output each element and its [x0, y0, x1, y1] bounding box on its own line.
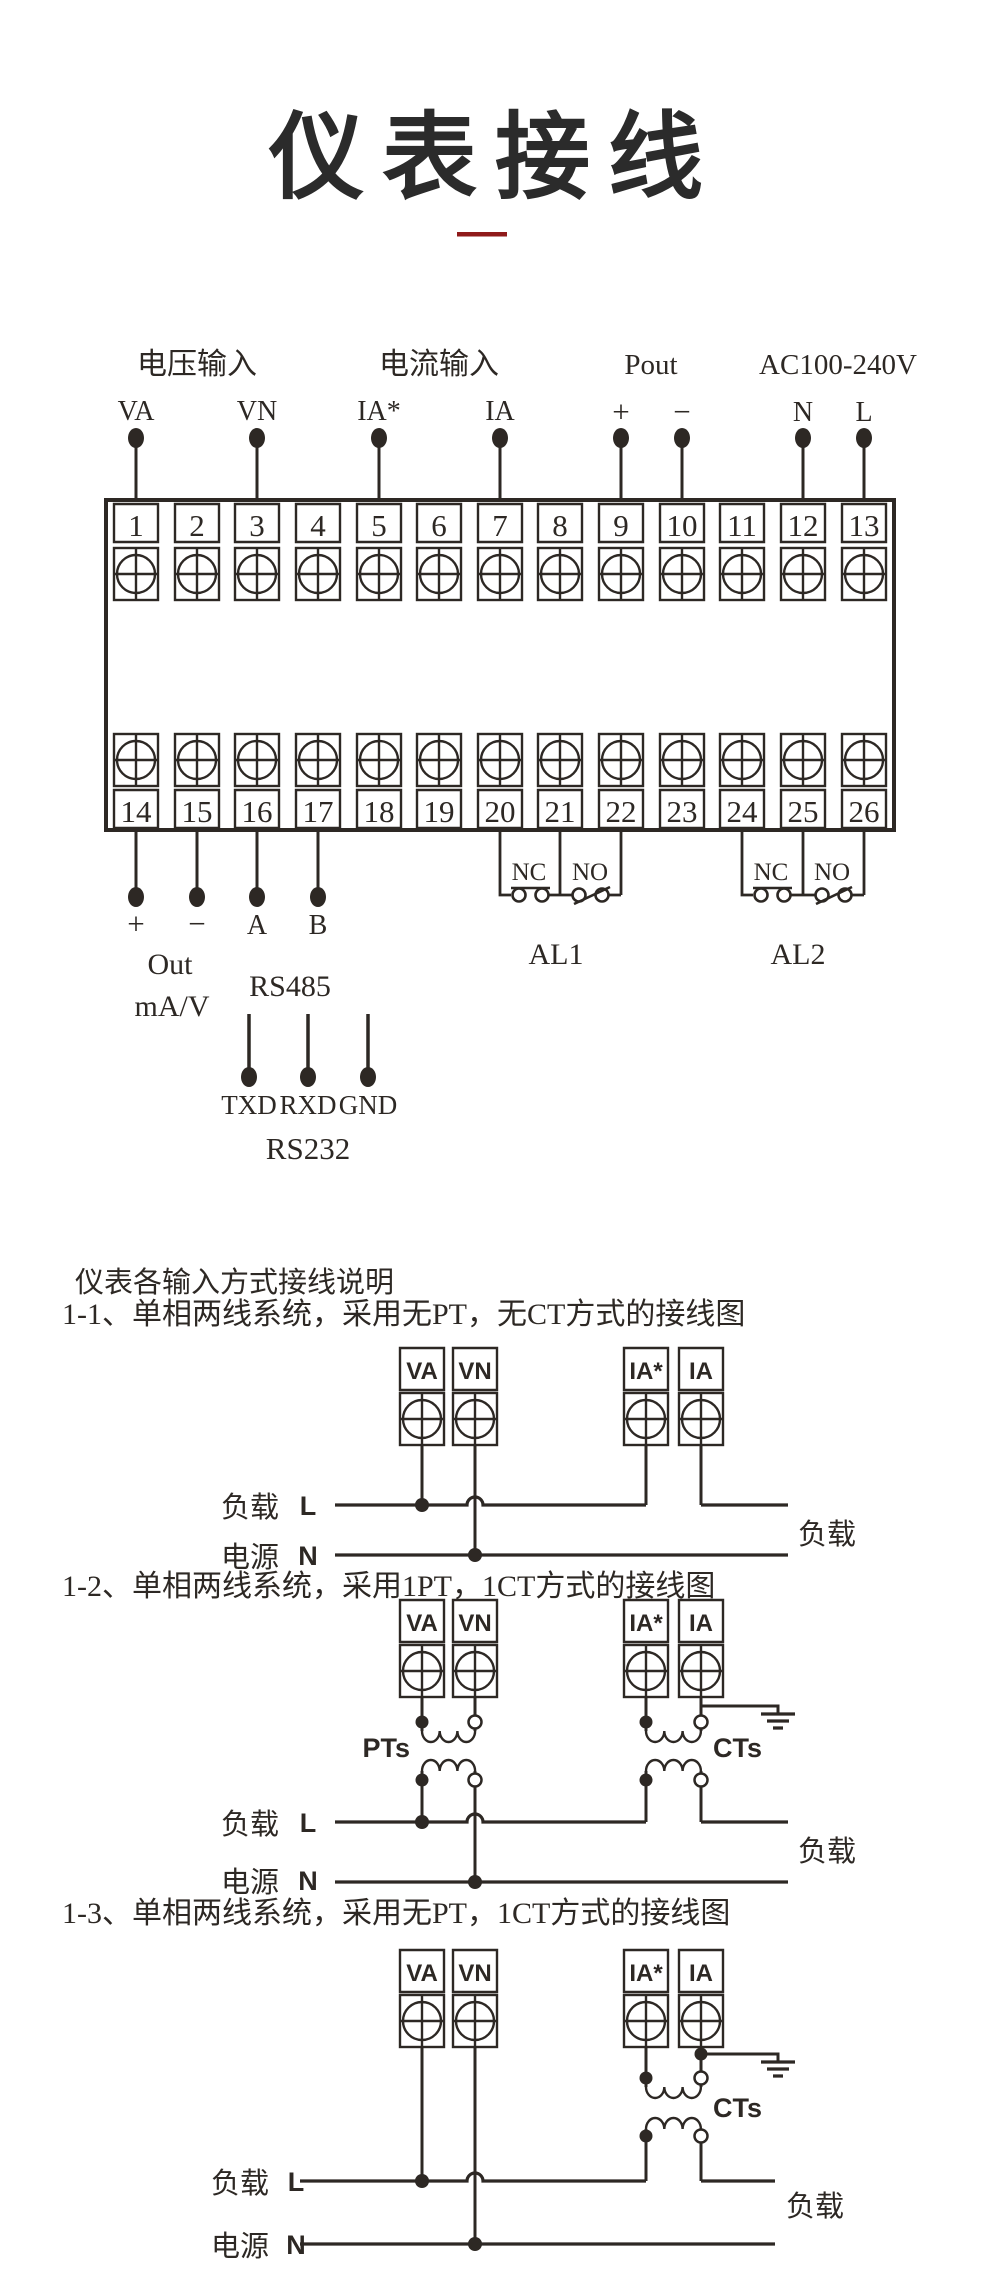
out-plus-label: + [127, 906, 144, 941]
live-label: L [300, 1808, 317, 1838]
top-wire-dots [128, 428, 872, 448]
neutral-label: N [298, 1866, 318, 1896]
diagram-1-1: VA VN IA* IA 负载 L 电源 N 负载 [221, 1348, 856, 1574]
open-terminal [695, 1774, 708, 1787]
wire-dot [241, 1067, 257, 1087]
relay-contact [778, 889, 791, 902]
terminal-number: 6 [431, 508, 447, 543]
terminal-number: 24 [727, 794, 759, 829]
relay-contact [536, 889, 549, 902]
terminal-number: 11 [727, 508, 757, 543]
load-label-left: 负载 [221, 1808, 279, 1841]
junction-dot [468, 1875, 482, 1889]
live-line [335, 1814, 788, 1822]
group-label-pout: Pout [624, 349, 677, 381]
junction-dot [415, 1815, 429, 1829]
junction-dot [415, 2174, 429, 2188]
open-terminal [695, 2130, 708, 2143]
ground-icon [761, 1714, 795, 1728]
terminal-number: 26 [849, 794, 880, 829]
source-label-left: 电源 [211, 2230, 269, 2263]
wire-dot [310, 887, 326, 907]
terminal-number: 23 [667, 794, 698, 829]
ct-coil [646, 1731, 701, 1771]
relay-contact [755, 889, 768, 902]
neutral-label: N [298, 1541, 318, 1571]
neutral-label: N [286, 2230, 306, 2260]
pt-coil [422, 1731, 475, 1771]
diagram-1-3-title: 1-3、单相两线系统，采用无PT，1CT方式的接线图 [62, 1897, 730, 1930]
terminal-label-ia: IA [689, 1610, 713, 1637]
section-intro: 仪表各输入方式接线说明 [75, 1266, 394, 1299]
terminal-label-ia-star: IA* [629, 1960, 663, 1987]
terminal-number: 12 [788, 508, 819, 543]
bottom-wire-dots [128, 887, 326, 907]
load-label-left: 负载 [211, 2167, 269, 2200]
analog-out-label: Out [148, 948, 194, 981]
terminal-number: 2 [189, 508, 205, 543]
terminal-label-va: VA [406, 1960, 438, 1987]
polarity-dot [416, 1716, 429, 1729]
wire-dot [613, 428, 629, 448]
diagram-1-2-title: 1-2、单相两线系统，采用1PT，1CT方式的接线图 [62, 1570, 715, 1603]
rs485-a-label: A [247, 910, 268, 941]
terminal-number: 21 [545, 794, 576, 829]
top-input-wires [136, 440, 864, 502]
wire-dot [856, 428, 872, 448]
group-label-ac-power: AC100-240V [759, 349, 917, 381]
wire-dot [128, 887, 144, 907]
rs232-txd-label: TXD [221, 1090, 277, 1120]
ct-label: CTs [713, 2093, 762, 2123]
terminal-number: 5 [371, 508, 387, 543]
ct-coil [646, 2087, 701, 2129]
terminal-number: 19 [424, 794, 455, 829]
junction-dot [695, 2048, 708, 2061]
diagram-1-3: VA VN IA* IA CTs 负载 L 电源 N 负载 [211, 1950, 844, 2263]
polarity-dot [640, 2130, 653, 2143]
relay-no-label: NO [572, 859, 608, 886]
terminal-number: 9 [613, 508, 629, 543]
ct-label: CTs [713, 1733, 762, 1763]
load-label-left: 负载 [221, 1491, 279, 1524]
terminal-label-va: VA [406, 1358, 438, 1385]
terminal-number: 22 [606, 794, 637, 829]
relay-nc-label: NC [754, 859, 789, 886]
terminal-number: 1 [128, 508, 144, 543]
terminal-number: 15 [182, 794, 213, 829]
rs232-rxd-label: RXD [279, 1090, 336, 1120]
ground-icon [761, 2062, 795, 2076]
terminal-label-ia-star: IA* [629, 1358, 663, 1385]
pin-label-ia-star: IA* [357, 396, 401, 427]
page-header: 仪表接线 [268, 105, 721, 237]
pin-label-n: N [793, 397, 813, 428]
diagram-wires [422, 2047, 778, 2244]
polarity-dot [416, 1774, 429, 1787]
wiring-manual-page: 仪表接线 电压输入 电流输入 Pout AC100-240V VA VN IA*… [0, 0, 990, 2285]
terminal-label-vn: VN [458, 1610, 491, 1637]
wire-dot [674, 428, 690, 448]
terminal-label-boxes [400, 1950, 723, 1992]
relay-nc-label: NC [512, 859, 547, 886]
polarity-dot [640, 2072, 653, 2085]
pt-label: PTs [362, 1733, 410, 1763]
rs232-gnd-label: GND [339, 1090, 398, 1120]
diagram-wires [422, 1445, 701, 1555]
terminal-label-vn: VN [458, 1960, 491, 1987]
live-line [300, 2173, 775, 2181]
page-title: 仪表接线 [268, 105, 721, 211]
diagram-1-2: VA VN IA* IA PTs CTs 负载 L 电源 [221, 1600, 856, 1899]
junction-dot [415, 1498, 429, 1512]
rs232-wires [249, 1014, 368, 1068]
load-label-right: 负载 [798, 1518, 856, 1551]
junction-dot [468, 2237, 482, 2251]
wire-dot [492, 428, 508, 448]
terminal-number: 8 [552, 508, 568, 543]
relay-contact [513, 889, 526, 902]
wire-dot [371, 428, 387, 448]
rs232-label: RS232 [266, 1131, 350, 1166]
live-line [335, 1497, 788, 1505]
terminal-block-diagram: 电压输入 电流输入 Pout AC100-240V VA VN IA* IA +… [106, 348, 917, 1166]
pin-label-pout-minus: − [673, 394, 690, 429]
relay-no-label: NO [814, 859, 850, 886]
terminal-number: 4 [310, 508, 326, 543]
terminal-label-ia-star: IA* [629, 1610, 663, 1637]
terminal-label-va: VA [406, 1610, 438, 1637]
diagram-1-1-title: 1-1、单相两线系统，采用无PT，无CT方式的接线图 [62, 1298, 745, 1331]
polarity-dot [640, 1774, 653, 1787]
bottom-output-wires [136, 832, 318, 888]
terminal-number: 17 [303, 794, 334, 829]
terminal-number: 16 [242, 794, 273, 829]
terminal-number: 3 [249, 508, 265, 543]
rs485-label: RS485 [249, 970, 331, 1003]
junction-dot [468, 1548, 482, 1562]
wire-dot [795, 428, 811, 448]
terminal-number: 10 [667, 508, 698, 543]
pin-label-pout-plus: + [612, 394, 629, 429]
terminal-label-vn: VN [458, 1358, 491, 1385]
group-label-voltage-input: 电压输入 [137, 348, 257, 381]
wire-dot [128, 428, 144, 448]
terminal-number: 20 [485, 794, 516, 829]
terminal-label-ia: IA [689, 1960, 713, 1987]
terminal-number: 18 [364, 794, 395, 829]
pin-label-vn: VN [237, 396, 277, 427]
load-label-right: 负载 [786, 2190, 844, 2223]
analog-out-unit: mA/V [135, 990, 210, 1023]
relay-al2: NC NO AL2 [742, 832, 864, 971]
wire-dot [249, 887, 265, 907]
relay-al2-name: AL2 [771, 938, 826, 971]
wire-dot [300, 1067, 316, 1087]
terminal-number: 13 [849, 508, 880, 543]
out-minus-label: − [188, 906, 205, 941]
wire-dot [249, 428, 265, 448]
group-label-current-input: 电流输入 [379, 348, 499, 381]
polarity-dot [640, 1716, 653, 1729]
relay-al1-name: AL1 [529, 938, 584, 971]
pin-label-ia: IA [485, 396, 515, 427]
terminal-number: 7 [492, 508, 508, 543]
pin-label-l: L [855, 397, 872, 428]
terminal-number: 14 [121, 794, 153, 829]
terminal-label-boxes [400, 1600, 723, 1642]
pin-label-va: VA [118, 396, 156, 427]
wire-dot [360, 1067, 376, 1087]
live-label: L [300, 1491, 317, 1521]
live-label: L [288, 2167, 305, 2197]
terminal-label-boxes [400, 1348, 723, 1390]
open-terminal [469, 1716, 482, 1729]
open-terminal [469, 1774, 482, 1787]
rs485-b-label: B [309, 910, 328, 941]
rs232-section: TXD RXD GND RS232 [221, 1014, 397, 1166]
terminal-number: 25 [788, 794, 819, 829]
open-terminal [695, 2072, 708, 2085]
source-label-left: 电源 [221, 1866, 279, 1899]
wire-dot [189, 887, 205, 907]
terminal-label-ia: IA [689, 1358, 713, 1385]
open-terminal [695, 1716, 708, 1729]
load-label-right: 负载 [798, 1835, 856, 1868]
relay-al1: NC NO AL1 [500, 832, 621, 971]
title-accent-dash [457, 232, 507, 237]
